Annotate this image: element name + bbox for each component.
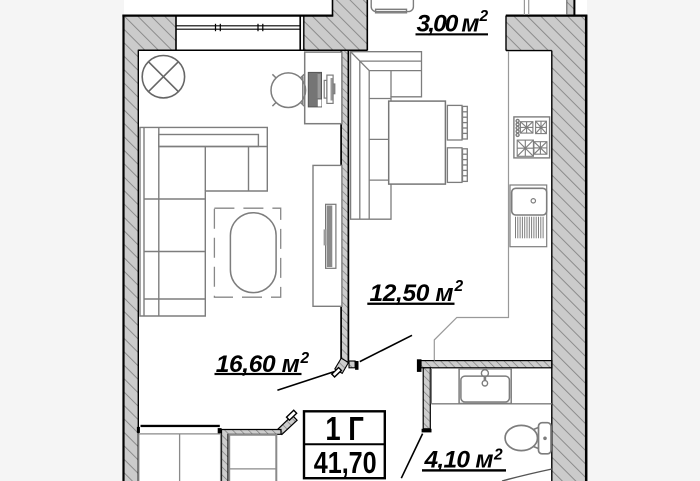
- svg-text:1 Г: 1 Г: [325, 411, 364, 448]
- svg-text:2: 2: [479, 8, 489, 25]
- svg-text:2: 2: [454, 278, 464, 295]
- svg-text:2: 2: [300, 350, 310, 367]
- svg-text:2: 2: [493, 447, 503, 464]
- svg-text:41,70: 41,70: [314, 446, 377, 480]
